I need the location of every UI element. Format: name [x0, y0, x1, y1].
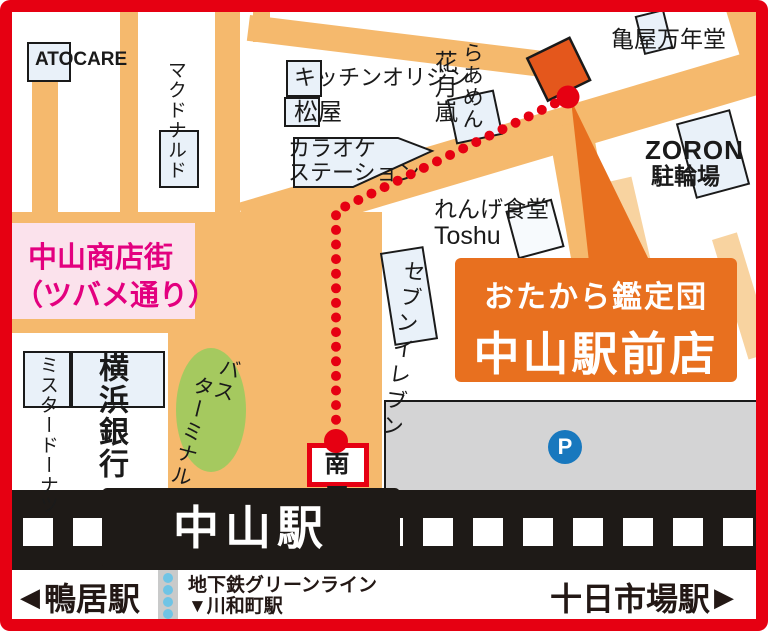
route-destination-marker	[557, 86, 580, 109]
route-dotted-path	[336, 97, 568, 424]
route-map: ATOCARE マクドナルド キッチンオリジン 松屋 カラオケ ステーション ら…	[0, 0, 768, 631]
route-start-marker	[324, 429, 348, 453]
walking-route-layer	[0, 0, 768, 631]
